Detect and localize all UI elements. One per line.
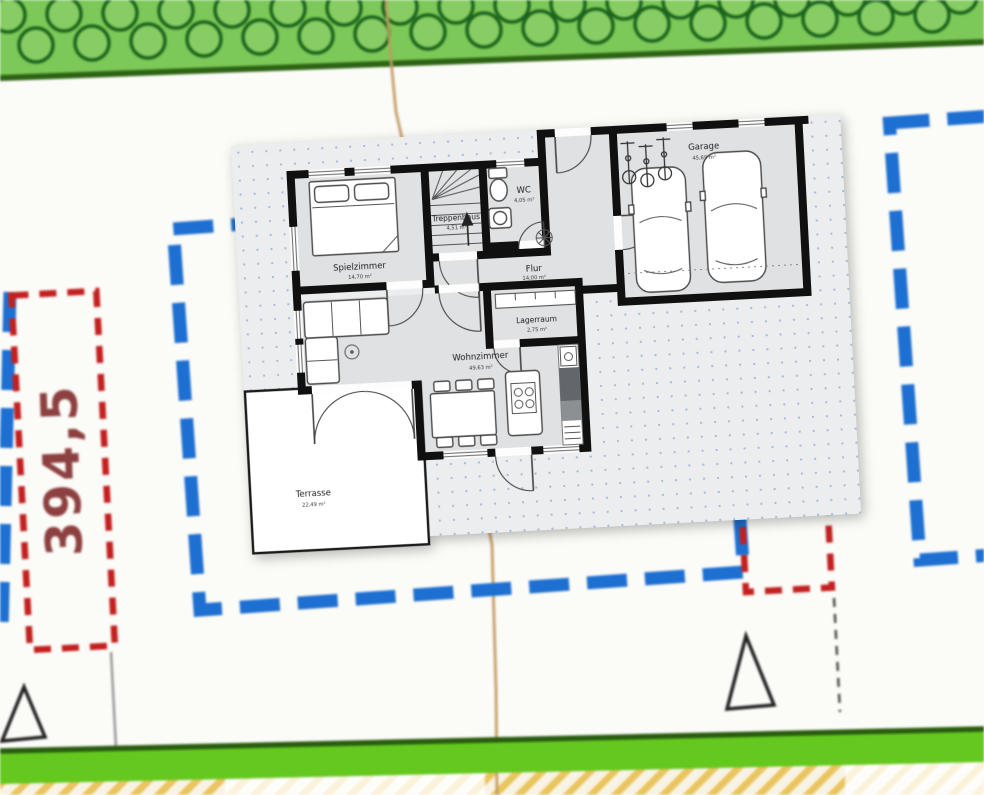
room-area-terrasse: 22,49 m² [302, 502, 326, 509]
site-plan-canvas: 394,5 [0, 0, 984, 795]
kitchen-island-icon [505, 370, 542, 436]
floorplan-drawing: Spielzimmer 14,70 m² Treppenhaus 4,51 m²… [231, 114, 864, 559]
boundary-dash-line [834, 598, 840, 712]
room-label-terrasse: Terrasse [295, 488, 332, 500]
bed-icon [309, 177, 399, 255]
room-area-wc: 4,05 m² [514, 197, 535, 204]
room-area-treppenhaus: 4,51 m² [446, 225, 467, 232]
room-area-lagerraum: 2,75 m² [527, 327, 548, 334]
room-area-garage: 45,69 m² [692, 155, 716, 162]
triangle-marker-icon [2, 687, 45, 741]
car-icon [627, 166, 695, 293]
toilet-icon [489, 168, 509, 202]
room-label-wc: WC [516, 185, 531, 196]
tree-strip [0, 0, 984, 78]
dining-table-icon [430, 379, 497, 448]
room-label-flur: Flur [526, 264, 543, 275]
room-label-garage: Garage [688, 141, 720, 153]
room-area-flur: 14,00 m² [522, 275, 546, 282]
room-area-spielzimmer: 14,70 m² [348, 274, 372, 281]
parcel-label: 394,5 [30, 382, 94, 557]
triangle-marker-icon [727, 636, 774, 709]
floorplan-overlay[interactable]: Spielzimmer 14,70 m² Treppenhaus 4,51 m²… [231, 114, 864, 559]
car-icon [698, 150, 771, 283]
building-outline-edge-left [2, 292, 10, 632]
plant-icon [536, 229, 553, 246]
bottom-green-strip [0, 729, 984, 784]
building-outline-right [889, 97, 984, 560]
measure-line [111, 652, 116, 748]
room-area-wohnzimmer: 49,63 m² [469, 365, 493, 372]
sink-icon [489, 207, 512, 228]
